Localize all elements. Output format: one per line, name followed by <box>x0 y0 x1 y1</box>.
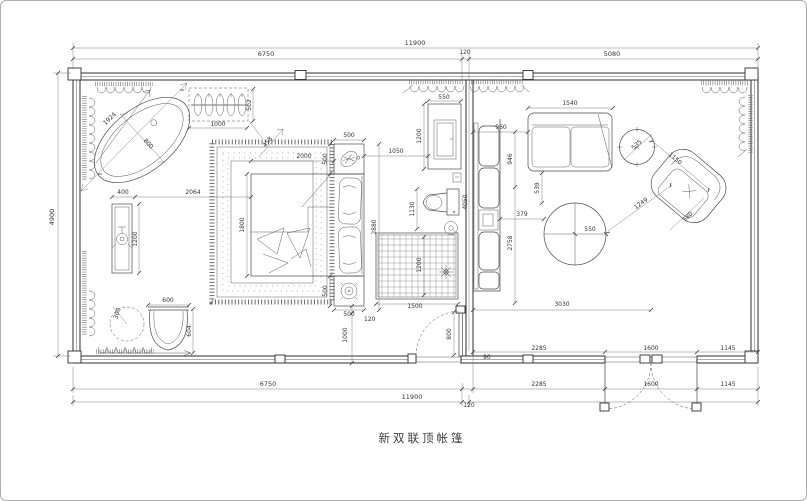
floor-plan-drawing: 11900 6750 120 5080 4900 2285 1600 1145 … <box>1 1 807 501</box>
dim-shower-depth: 1200 <box>416 257 423 272</box>
dim-tub-length: 1924 <box>102 111 118 127</box>
dim-top-overall: 11900 <box>405 39 426 47</box>
interior-wall <box>466 80 473 356</box>
l-sofa <box>473 119 500 291</box>
dim-bed-foot-gap: 1000 <box>342 327 349 342</box>
dim-chair-width: 600 <box>162 297 174 304</box>
dim-chair-depth: 604 <box>186 325 193 337</box>
plant-icon <box>338 148 361 170</box>
drawing-caption: 新双联顶帐篷 <box>379 431 466 445</box>
barrel-chair <box>148 307 189 350</box>
dim-bed-length: 1800 <box>239 217 246 232</box>
duvet-folds <box>251 174 331 273</box>
dim-bed-wall-gap: 120 <box>364 316 376 323</box>
bathtub-dims <box>81 83 187 191</box>
dim-shower-width: 1500 <box>407 303 422 310</box>
nightstand-top <box>334 144 364 174</box>
curtains <box>85 82 751 356</box>
dim-bottom-upper-1145: 1145 <box>720 345 735 352</box>
dim-bottom-1145: 1145 <box>720 381 735 388</box>
dim-door-width: 800 <box>446 328 453 340</box>
pillow <box>338 227 362 274</box>
dim-rug-gap: 458 <box>262 135 275 148</box>
dim-living-depth: 2758 <box>507 235 514 250</box>
bathtub <box>79 81 205 200</box>
dim-couch-width: 1540 <box>562 100 577 107</box>
outer-walls <box>73 73 758 363</box>
vanity-counter <box>112 204 132 273</box>
dim-top-right: 5080 <box>604 50 621 58</box>
wall-fixture <box>453 173 461 182</box>
table-lamp-icon <box>341 283 358 300</box>
rug <box>212 142 332 302</box>
dim-bottom-upper-1600: 1600 <box>643 345 658 352</box>
dim-bottom-1600: 1600 <box>643 381 658 388</box>
floor-plan-canvas: 11900 6750 120 5080 4900 2285 1600 1145 … <box>0 0 807 501</box>
dim-stool-radius: 300 <box>112 307 122 320</box>
dimension-labels: 11900 6750 120 5080 4900 2285 1600 1145 … <box>48 39 736 409</box>
dim-table-radius: 550 <box>584 226 596 233</box>
dim-couch-offset: 960 <box>495 124 507 131</box>
dim-top-mid: 120 <box>459 49 471 56</box>
dim-couch-depth: 946 <box>507 153 514 165</box>
clothes-rack <box>189 88 248 121</box>
dim-table-gap-h: 379 <box>516 211 528 218</box>
dim-cabinet-gap: 1050 <box>388 148 403 155</box>
bedroom-entry-door <box>416 306 465 362</box>
dim-nightstand-bot-d: 500 <box>322 285 329 297</box>
dim-vanity-width: 400 <box>117 189 129 196</box>
dim-nightstand-top-d: 500 <box>322 153 329 165</box>
dim-bottom-overall: 11900 <box>402 393 423 401</box>
toilet <box>424 189 460 215</box>
dim-bottom-6750: 6750 <box>260 380 277 388</box>
bed <box>251 174 364 276</box>
dim-cabinet-width: 550 <box>438 94 450 101</box>
dim-top-left: 6750 <box>258 50 275 58</box>
dim-rack-depth: 502 <box>246 99 253 111</box>
pillow <box>338 178 362 225</box>
dim-door-jamb: 90 <box>483 354 491 361</box>
tv-cabinet <box>428 104 461 169</box>
dim-armchair-depth: 580 <box>681 210 694 223</box>
dim-toilet-width: 1130 <box>409 201 416 216</box>
dim-bottom-2285: 2285 <box>531 381 546 388</box>
dim-living-width: 3030 <box>554 301 569 308</box>
dim-bottom-wall: 120 <box>463 402 475 409</box>
dim-nightstand-top-w: 500 <box>343 132 355 139</box>
couch <box>528 113 612 171</box>
nightstand-bottom <box>334 276 364 306</box>
dim-tub-width: 800 <box>142 137 155 150</box>
dim-rack-width: 1000 <box>210 121 225 128</box>
dim-bed-zone: 2880 <box>371 219 378 234</box>
dim-armchair-gap: 1249 <box>633 196 650 211</box>
dim-bottom-upper-2285: 2285 <box>531 345 546 352</box>
dim-armchair-width: 1150 <box>667 151 683 166</box>
coffee-table <box>544 203 608 265</box>
dim-left-height: 4900 <box>48 209 56 226</box>
toilet-paper-icon <box>445 222 458 235</box>
floor-drain-icon <box>439 265 453 279</box>
dim-bed-width: 2000 <box>296 153 311 160</box>
dim-cabinet-height: 1200 <box>416 128 423 143</box>
dim-vanity-length: 1200 <box>132 231 139 246</box>
dim-vanity-to-bed: 2064 <box>185 189 200 196</box>
dim-table-gap-v: 539 <box>534 182 541 194</box>
dim-sofa-length: 4050 <box>462 194 469 209</box>
dim-side-table: 535 <box>630 138 643 151</box>
dim-nightstand-bot-w: 500 <box>343 311 355 318</box>
